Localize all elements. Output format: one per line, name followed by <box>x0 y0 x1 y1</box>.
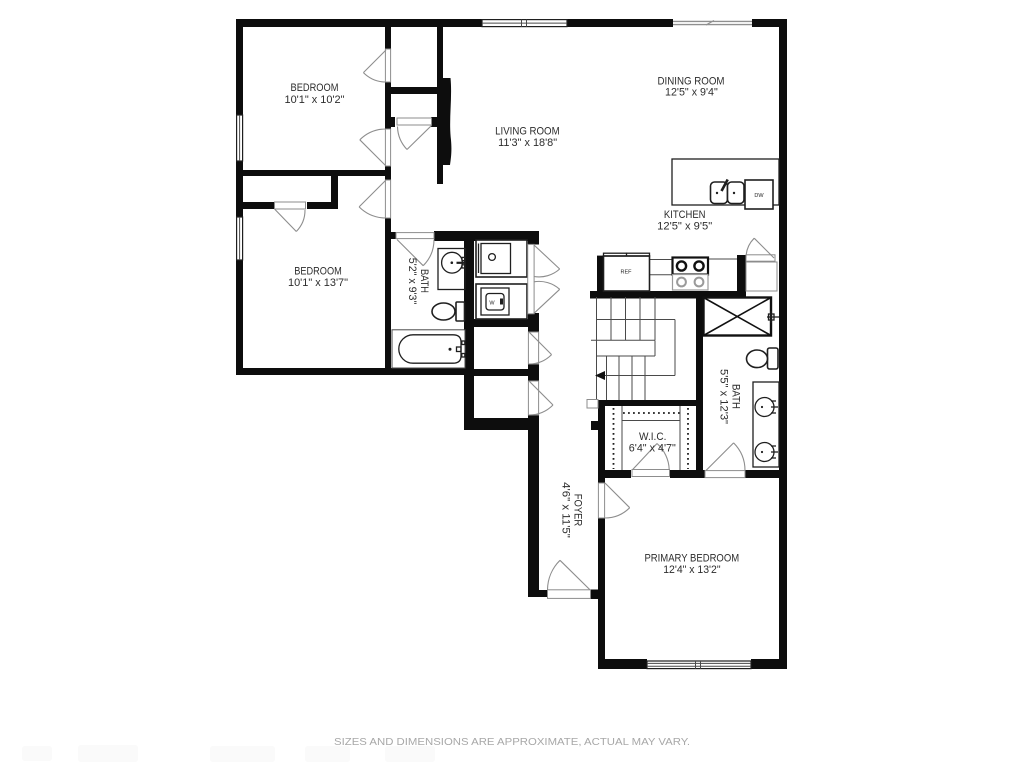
svg-text:11'3" x 18'8": 11'3" x 18'8" <box>498 137 557 149</box>
svg-text:KITCHEN: KITCHEN <box>664 209 706 221</box>
svg-text:FOYER: FOYER <box>572 494 584 527</box>
svg-text:5'2" x 9'3": 5'2" x 9'3" <box>406 258 418 305</box>
svg-text:12'4" x 13'2": 12'4" x 13'2" <box>663 564 720 576</box>
svg-text:4'6" x 11'5": 4'6" x 11'5" <box>560 482 572 538</box>
svg-text:10'1" x 13'7": 10'1" x 13'7" <box>288 277 348 289</box>
svg-text:10'1" x 10'2": 10'1" x 10'2" <box>285 94 345 106</box>
svg-text:PRIMARY BEDROOM: PRIMARY BEDROOM <box>644 553 739 565</box>
svg-text:6'4" x 4'7": 6'4" x 4'7" <box>629 443 676 455</box>
svg-text:W: W <box>489 301 495 307</box>
svg-text:BEDROOM: BEDROOM <box>291 82 339 94</box>
svg-text:12'5" x 9'4": 12'5" x 9'4" <box>665 87 718 99</box>
svg-text:W.I.C.: W.I.C. <box>639 431 666 443</box>
svg-text:5'5" x 12'3": 5'5" x 12'3" <box>717 369 729 424</box>
svg-text:REF: REF <box>621 270 633 276</box>
svg-text:BATH: BATH <box>729 384 741 409</box>
svg-text:LIVING ROOM: LIVING ROOM <box>495 126 560 138</box>
svg-text:BEDROOM: BEDROOM <box>294 266 342 278</box>
svg-text:BATH: BATH <box>418 269 430 293</box>
svg-text:DW: DW <box>754 193 764 199</box>
svg-text:12'5" x 9'5": 12'5" x 9'5" <box>657 220 712 232</box>
